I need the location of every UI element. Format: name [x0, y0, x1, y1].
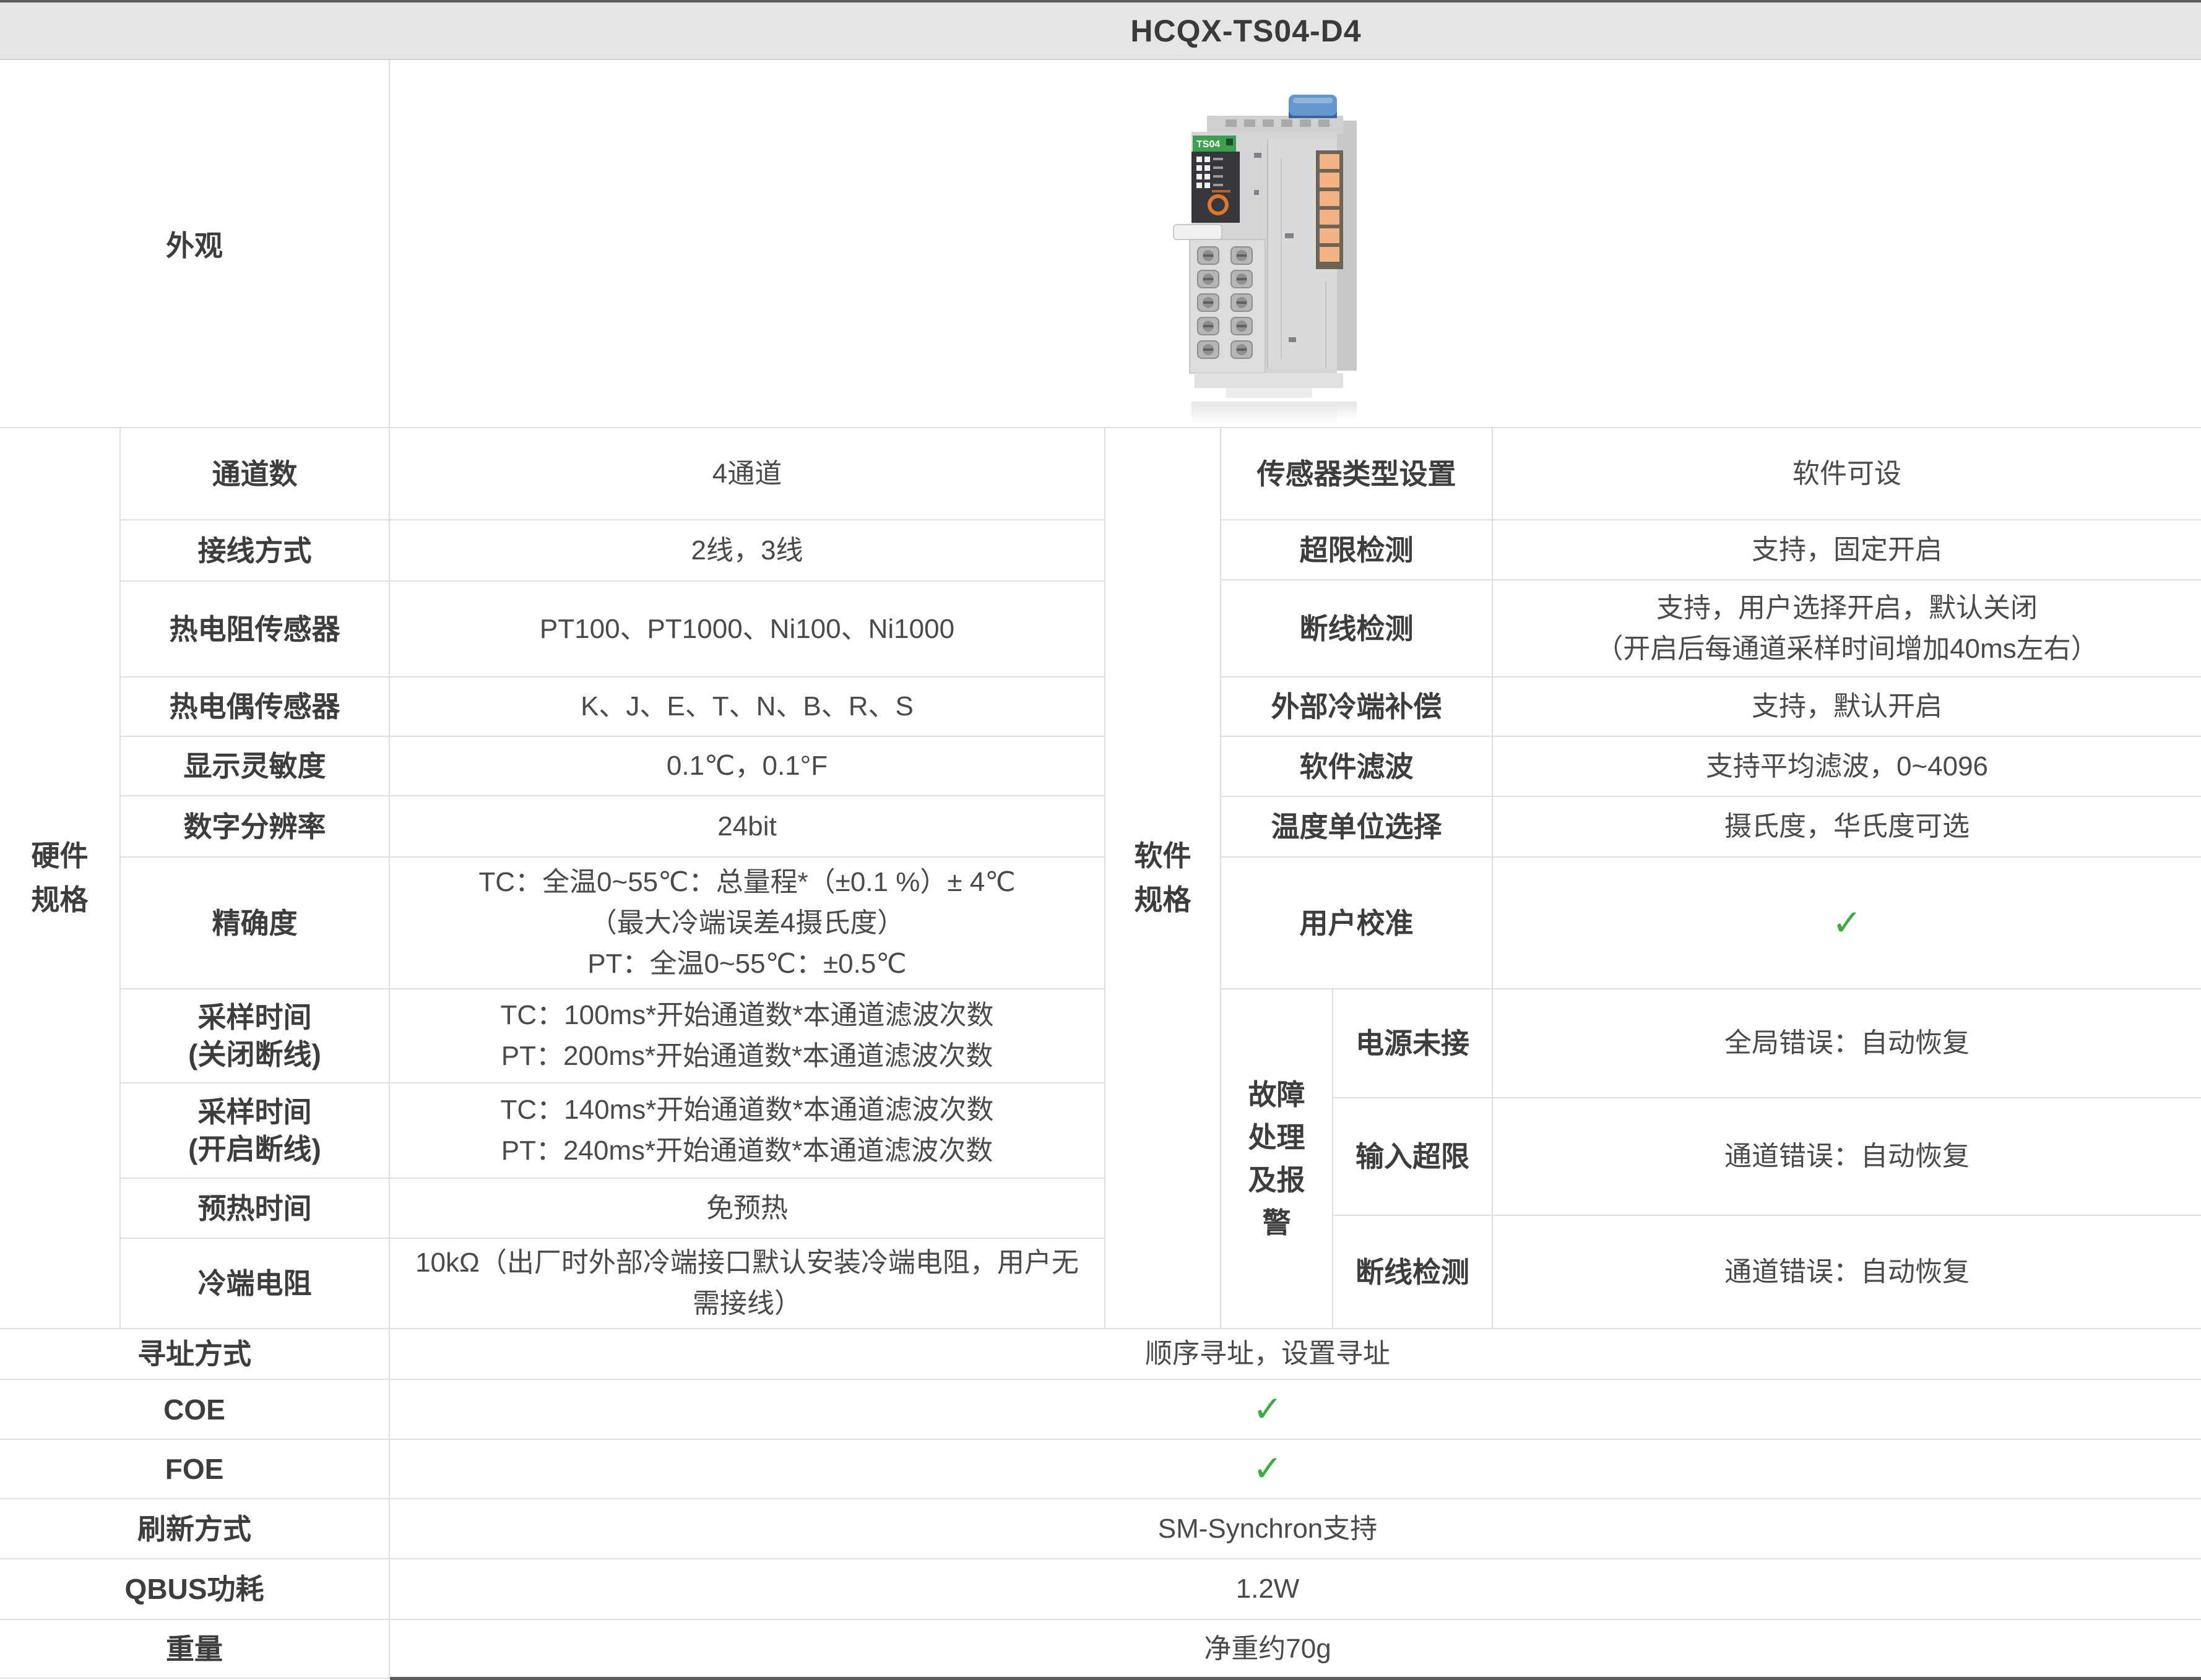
- product-image: TS04: [1133, 77, 1393, 424]
- user-calibration-value: ✓: [1493, 858, 2201, 989]
- spec-table: HCQX-TS04-D4 外观: [0, 0, 2201, 1680]
- software-filter-value: 支持平均滤波，0~4096: [1493, 737, 2201, 797]
- warmup-label: 预热时间: [121, 1179, 390, 1239]
- refresh-mode-value: SM-Synchron支持: [390, 1499, 2201, 1559]
- bottom-border: [390, 1677, 2201, 1680]
- cold-junction-comp-value: 支持，默认开启: [1493, 678, 2201, 737]
- weight-label: 重量: [0, 1620, 390, 1679]
- sampling-closed-value: TC：100ms*开始通道数*本通道滤波次数 PT：200ms*开始通道数*本通…: [390, 989, 1105, 1083]
- user-calibration-label: 用户校准: [1221, 858, 1493, 989]
- hardware-spec-table: 硬件规格 通道数 4通道 接线方式 2线，3线 热电阻传感器 PT100、PT1…: [0, 428, 1105, 1329]
- wiring-label: 接线方式: [121, 520, 390, 582]
- wiring-value: 2线，3线: [390, 520, 1105, 582]
- power-missing-label: 电源未接: [1333, 989, 1493, 1098]
- addressing-value: 顺序寻址，设置寻址: [390, 1329, 2201, 1380]
- sensitivity-value: 0.1℃，0.1°F: [390, 737, 1105, 796]
- hardware-section-label: 硬件规格: [0, 428, 121, 1329]
- table-header: HCQX-TS04-D4: [0, 2, 2201, 60]
- power-missing-value: 全局错误：自动恢复: [1493, 989, 2201, 1098]
- cold-junction-comp-label: 外部冷端补偿: [1221, 678, 1493, 737]
- thermocouple-value: K、J、E、T、N、B、R、S: [390, 678, 1105, 737]
- accuracy-value: TC：全温0~55℃：总量程*（±0.1 %）± 4℃ （最大冷端误差4摄氏度）…: [390, 858, 1105, 989]
- warmup-value: 免预热: [390, 1179, 1105, 1239]
- overlimit-detect-label: 超限检测: [1221, 520, 1493, 580]
- sensor-type-value: 软件可设: [1493, 428, 2201, 520]
- general-spec-table: 寻址方式 顺序寻址，设置寻址 COE ✓ FOE ✓ 刷新方式 SM-Synch…: [0, 1329, 2201, 1679]
- foe-label: FOE: [0, 1440, 390, 1499]
- qbus-power-value: 1.2W: [390, 1559, 2201, 1620]
- sampling-open-value: TC：140ms*开始通道数*本通道滤波次数 PT：240ms*开始通道数*本通…: [390, 1083, 1105, 1179]
- input-overlimit-label: 输入超限: [1333, 1098, 1493, 1216]
- qbus-power-label: QBUS功耗: [0, 1559, 390, 1620]
- overlimit-detect-value: 支持，固定开启: [1493, 520, 2201, 580]
- temp-unit-label: 温度单位选择: [1221, 797, 1493, 858]
- sampling-closed-label: 采样时间 (关闭断线): [121, 989, 390, 1083]
- software-spec-table: 软件规格 传感器类型设置 软件可设 超限检测 支持，固定开启 断线检测 支持，用…: [1105, 428, 2201, 1329]
- check-icon: ✓: [1253, 1392, 1283, 1428]
- refresh-mode-label: 刷新方式: [0, 1499, 390, 1559]
- resolution-label: 数字分辨率: [121, 796, 390, 858]
- thermocouple-label: 热电偶传感器: [121, 678, 390, 737]
- coe-value: ✓: [390, 1380, 2201, 1440]
- check-icon: ✓: [1253, 1451, 1283, 1487]
- software-filter-label: 软件滤波: [1221, 737, 1493, 797]
- wire-break-detect-value: 通道错误：自动恢复: [1493, 1216, 2201, 1329]
- channels-label: 通道数: [121, 428, 390, 520]
- temp-unit-value: 摄氏度，华氏度可选: [1493, 797, 2201, 858]
- wire-break-value: 支持，用户选择开启，默认关闭 （开启后每通道采样时间增加40ms左右）: [1493, 580, 2201, 678]
- wire-break-label: 断线检测: [1221, 580, 1493, 678]
- fault-section-label: 故障处理及报警: [1221, 989, 1333, 1329]
- foe-value: ✓: [390, 1440, 2201, 1499]
- rtd-sensor-label: 热电阻传感器: [121, 582, 390, 678]
- appearance-label: 外观: [0, 60, 390, 428]
- weight-value: 净重约70g: [390, 1620, 2201, 1679]
- sensor-type-label: 传感器类型设置: [1221, 428, 1493, 520]
- appearance-row: 外观: [0, 60, 2201, 428]
- addressing-label: 寻址方式: [0, 1329, 390, 1380]
- svg-text:TS04: TS04: [1196, 139, 1220, 150]
- wire-break-detect-label: 断线检测: [1333, 1216, 1493, 1329]
- rtd-sensor-value: PT100、PT1000、Ni100、Ni1000: [390, 582, 1105, 678]
- check-icon: ✓: [1832, 905, 1862, 941]
- resolution-value: 24bit: [390, 796, 1105, 858]
- cold-junction-resistor-value: 10kΩ（出厂时外部冷端接口默认安装冷端电阻，用户无需接线）: [390, 1239, 1105, 1329]
- input-overlimit-value: 通道错误：自动恢复: [1493, 1098, 2201, 1216]
- sensitivity-label: 显示灵敏度: [121, 737, 390, 796]
- channels-value: 4通道: [390, 428, 1105, 520]
- accuracy-label: 精确度: [121, 858, 390, 989]
- page-title: HCQX-TS04-D4: [839, 13, 1361, 49]
- software-section-label: 软件规格: [1105, 428, 1221, 1329]
- cold-junction-resistor-label: 冷端电阻: [121, 1239, 390, 1329]
- sampling-open-label: 采样时间 (开启断线): [121, 1083, 390, 1179]
- appearance-image-cell: TS04: [390, 60, 2201, 428]
- coe-label: COE: [0, 1380, 390, 1440]
